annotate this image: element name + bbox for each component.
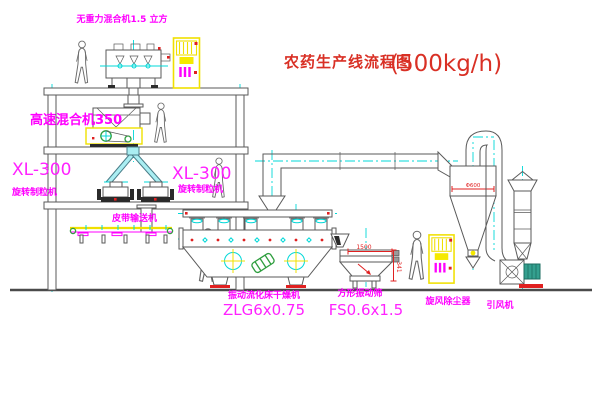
granulator-left bbox=[97, 182, 134, 202]
label-dryer-model: ZLG6x0.75 bbox=[223, 301, 305, 319]
granulator-right bbox=[137, 182, 174, 202]
dryer-ports bbox=[189, 218, 329, 230]
label-gravity-mixer: 无重力混合机1.5 立方 bbox=[75, 13, 167, 25]
label-dryer-name: 振动流化床干燥机 bbox=[228, 289, 300, 301]
control-cabinet-upper bbox=[174, 38, 200, 88]
label-belt-conveyor: 皮带输送机 bbox=[111, 212, 157, 224]
cyclone-separator bbox=[450, 166, 496, 268]
floor-slab-mid bbox=[44, 147, 248, 154]
induced-draft-fan bbox=[500, 260, 543, 288]
dim-cyclone-diameter: Φ600 bbox=[466, 183, 481, 189]
gravity-free-mixer bbox=[100, 44, 170, 95]
label-granulator-left-name: 旋转制粒机 bbox=[11, 186, 57, 198]
dim-sieve-height: 341 bbox=[395, 261, 402, 273]
dim-sieve-length: 1500 bbox=[356, 244, 371, 251]
label-granulator-right-name: 旋转制粒机 bbox=[177, 183, 223, 195]
exhaust-stack bbox=[508, 172, 537, 260]
floor-slab-top bbox=[44, 88, 248, 95]
square-vibrating-sieve bbox=[340, 249, 399, 289]
person-figure bbox=[75, 41, 87, 83]
person-figure bbox=[155, 103, 167, 142]
label-cyclone: 旋风除尘器 bbox=[424, 295, 471, 307]
pesticide-line-flow-diagram: 无重力混合机1.5 立方 高速混合机350 XL-300 旋转制粒机 XL-30… bbox=[0, 0, 600, 403]
label-sieve-name: 方形振动筛 bbox=[337, 287, 382, 299]
diagram-title-capacity: (500kg/h) bbox=[390, 51, 502, 77]
cad-drawing-page: 无重力混合机1.5 立方 高速混合机350 XL-300 旋转制粒机 XL-30… bbox=[0, 0, 600, 403]
label-high-speed-mixer: 高速混合机350 bbox=[30, 112, 122, 128]
label-sieve-model: FS0.6x1.5 bbox=[329, 301, 403, 319]
label-fan: 引风机 bbox=[486, 299, 513, 311]
person-figure bbox=[409, 231, 423, 279]
label-granulator-right-model: XL-300 bbox=[172, 164, 231, 184]
belt-conveyor bbox=[70, 225, 173, 243]
label-granulator-left-model: XL-300 bbox=[12, 160, 71, 180]
control-cabinet-lower bbox=[429, 235, 454, 283]
